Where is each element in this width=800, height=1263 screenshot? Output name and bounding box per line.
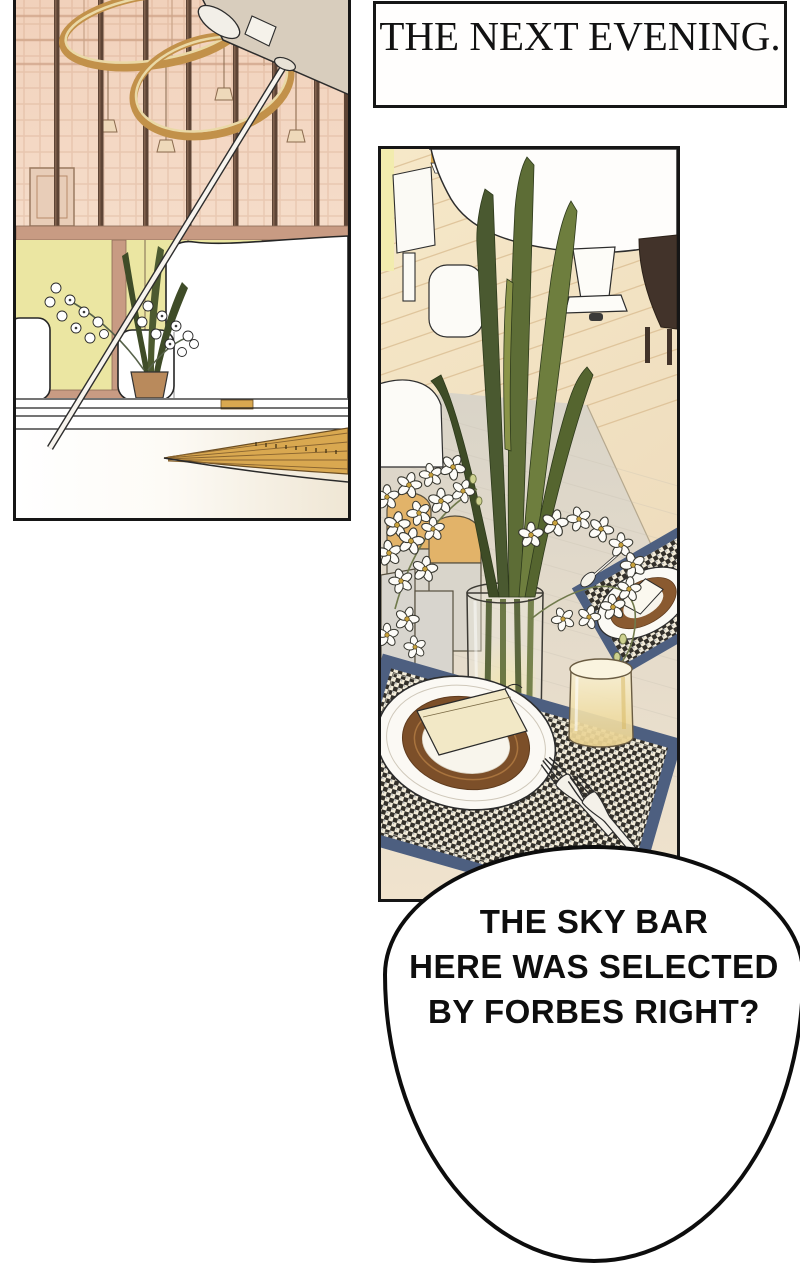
- speech-line: THE SKY BAR: [387, 899, 800, 944]
- living-room-illustration: [16, 0, 348, 521]
- piano-lid: [16, 428, 348, 521]
- panel-living-room: [13, 0, 351, 521]
- table-setting-illustration: [381, 149, 677, 899]
- speech-bubble: THE SKY BAR HERE WAS SELECTED BY FORBES …: [383, 845, 800, 1263]
- speech-bubble-text: THE SKY BAR HERE WAS SELECTED BY FORBES …: [387, 899, 800, 1034]
- speech-line: HERE WAS SELECTED: [387, 944, 800, 989]
- caption-text: THE NEXT EVENING.: [376, 12, 784, 60]
- panel-table-setting: [378, 146, 680, 902]
- speech-line: BY FORBES RIGHT?: [387, 989, 800, 1034]
- caption-box: THE NEXT EVENING.: [373, 1, 787, 108]
- water-glass: [569, 659, 633, 747]
